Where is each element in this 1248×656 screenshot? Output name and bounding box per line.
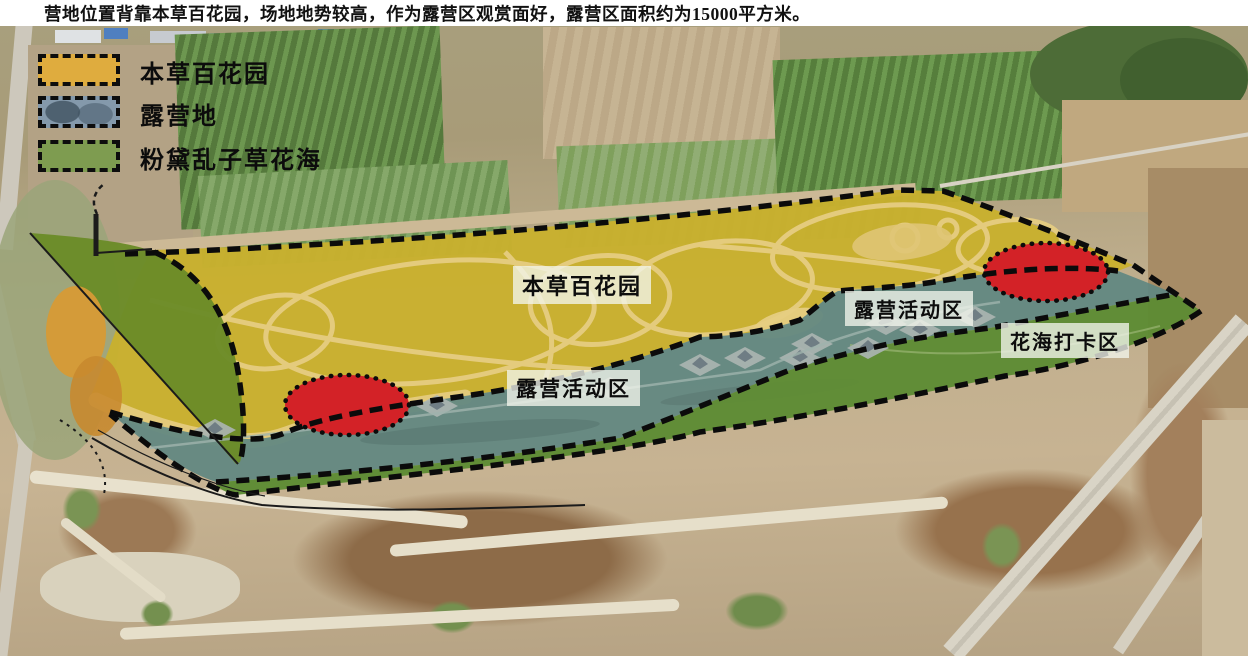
legend-swatch-camping bbox=[38, 96, 120, 128]
page-title: 营地位置背靠本草百花园，场地地势较高，作为露营区观赏面好，露营区面积约为1500… bbox=[44, 1, 810, 26]
legend-label: 粉黛乱子草花海 bbox=[140, 140, 322, 175]
autumn-tree bbox=[70, 356, 122, 436]
legend-swatch-herb-garden bbox=[38, 54, 120, 86]
site-plan-screenshot: 本草百花园 露营活动区 露营活动区 花海打卡区 本草百花园 露营地 粉黛乱子草花… bbox=[0, 0, 1248, 656]
zone-label-camping-left: 露营活动区 bbox=[507, 370, 640, 406]
boundary-stub-dashed bbox=[94, 184, 104, 214]
zone-label-camping-right: 露营活动区 bbox=[845, 291, 973, 326]
highlight-ellipse bbox=[984, 243, 1108, 301]
title-bar: 营地位置背靠本草百花园，场地地势较高，作为露营区观赏面好，露营区面积约为1500… bbox=[0, 0, 1248, 26]
zone-label-herb-garden: 本草百花园 bbox=[513, 266, 651, 304]
zone-label-flower-checkin: 花海打卡区 bbox=[1001, 323, 1129, 358]
legend-swatch-flower-sea bbox=[38, 140, 120, 172]
legend-label: 本草百花园 bbox=[140, 54, 270, 89]
legend-label: 露营地 bbox=[140, 96, 218, 131]
